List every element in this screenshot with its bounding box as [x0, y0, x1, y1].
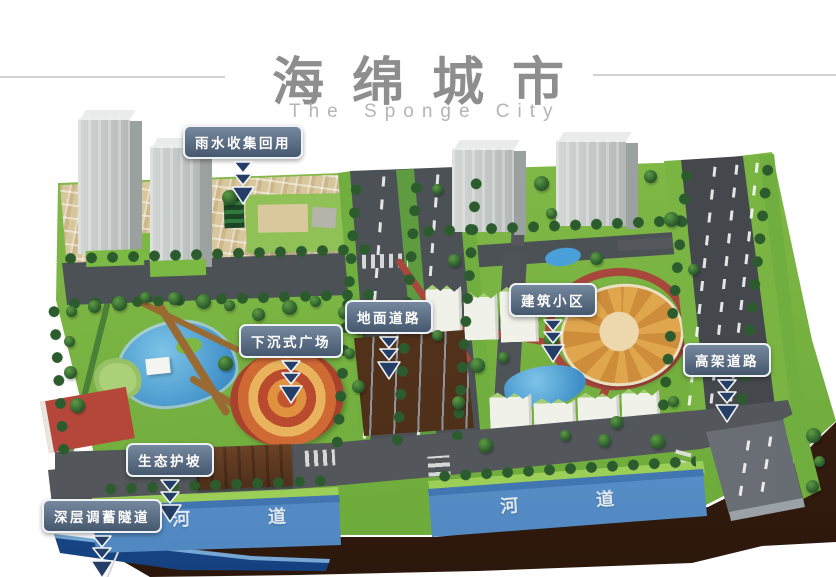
- courtyard-plaza: [258, 204, 308, 233]
- tree-icon: [168, 292, 181, 305]
- label-box: 生态护坡: [126, 443, 214, 477]
- tower-face: [556, 140, 626, 226]
- crosswalk: [305, 449, 336, 467]
- down-chevrons-icon: [278, 360, 304, 406]
- label-box: 深层调蓄隧道: [42, 499, 162, 533]
- tower-side: [130, 121, 142, 257]
- down-chevrons-icon: [376, 336, 402, 382]
- residential-tower: [556, 140, 638, 226]
- callout-rainwater-reuse: 雨水收集回用: [183, 125, 303, 207]
- tree-icon: [688, 264, 699, 275]
- tree-icon: [196, 294, 211, 309]
- callout-residential-area: 建筑小区: [509, 283, 597, 365]
- tree-icon: [64, 336, 75, 347]
- down-chevrons-icon: [230, 161, 256, 207]
- tree-icon: [140, 292, 151, 303]
- tree-icon: [598, 434, 611, 447]
- tree-icon: [452, 396, 465, 409]
- office-tower: [78, 118, 142, 254]
- tree-icon: [432, 184, 443, 195]
- tree-icon: [470, 358, 485, 373]
- tree-icon: [534, 176, 549, 191]
- tree-icon: [560, 430, 571, 441]
- tree-icon: [610, 416, 623, 429]
- tree-icon: [224, 300, 235, 311]
- tree-icon: [218, 356, 233, 371]
- tree-icon: [88, 300, 101, 313]
- label-box: 地面道路: [345, 300, 433, 334]
- tree-icon: [66, 306, 77, 317]
- tree-icon: [252, 308, 265, 321]
- tree-icon: [814, 456, 825, 467]
- tree-icon: [478, 438, 493, 453]
- label-box: 建筑小区: [509, 283, 597, 317]
- down-chevrons-icon: [89, 535, 115, 577]
- down-chevrons-icon: [540, 319, 566, 365]
- label-box: 高架道路: [683, 343, 771, 377]
- tower-face: [452, 148, 514, 232]
- tree-icon: [644, 170, 657, 183]
- sponge-city-infographic: 海绵城市 The Sponge City: [0, 0, 836, 577]
- tower-face: [78, 118, 130, 254]
- tree-icon: [70, 398, 85, 413]
- tree-icon: [432, 330, 443, 341]
- callout-elevated-road: 高架道路: [683, 343, 771, 425]
- residential-tower: [452, 148, 526, 232]
- down-chevrons-icon: [714, 379, 740, 425]
- label-box: 雨水收集回用: [183, 125, 303, 159]
- tree-icon: [664, 212, 679, 227]
- tree-icon: [282, 300, 297, 315]
- tree-icon: [650, 434, 665, 449]
- tree-icon: [498, 352, 509, 363]
- label-box: 下沉式广场: [239, 324, 343, 358]
- courtyard-core: [311, 207, 336, 229]
- callout-ground-road: 地面道路: [345, 300, 433, 382]
- tree-icon: [448, 254, 461, 267]
- callout-sunken-plaza: 下沉式广场: [239, 324, 343, 406]
- tree-icon: [806, 480, 819, 493]
- tree-icon: [546, 208, 557, 219]
- pavilion: [145, 357, 171, 375]
- tree-icon: [806, 428, 821, 443]
- tree-icon: [64, 366, 77, 379]
- callout-deep-tunnel: 深层调蓄隧道: [42, 499, 162, 577]
- tree-icon: [112, 296, 127, 311]
- tree-icon: [668, 396, 679, 407]
- tree-icon: [590, 252, 603, 265]
- tree-icon: [310, 296, 321, 307]
